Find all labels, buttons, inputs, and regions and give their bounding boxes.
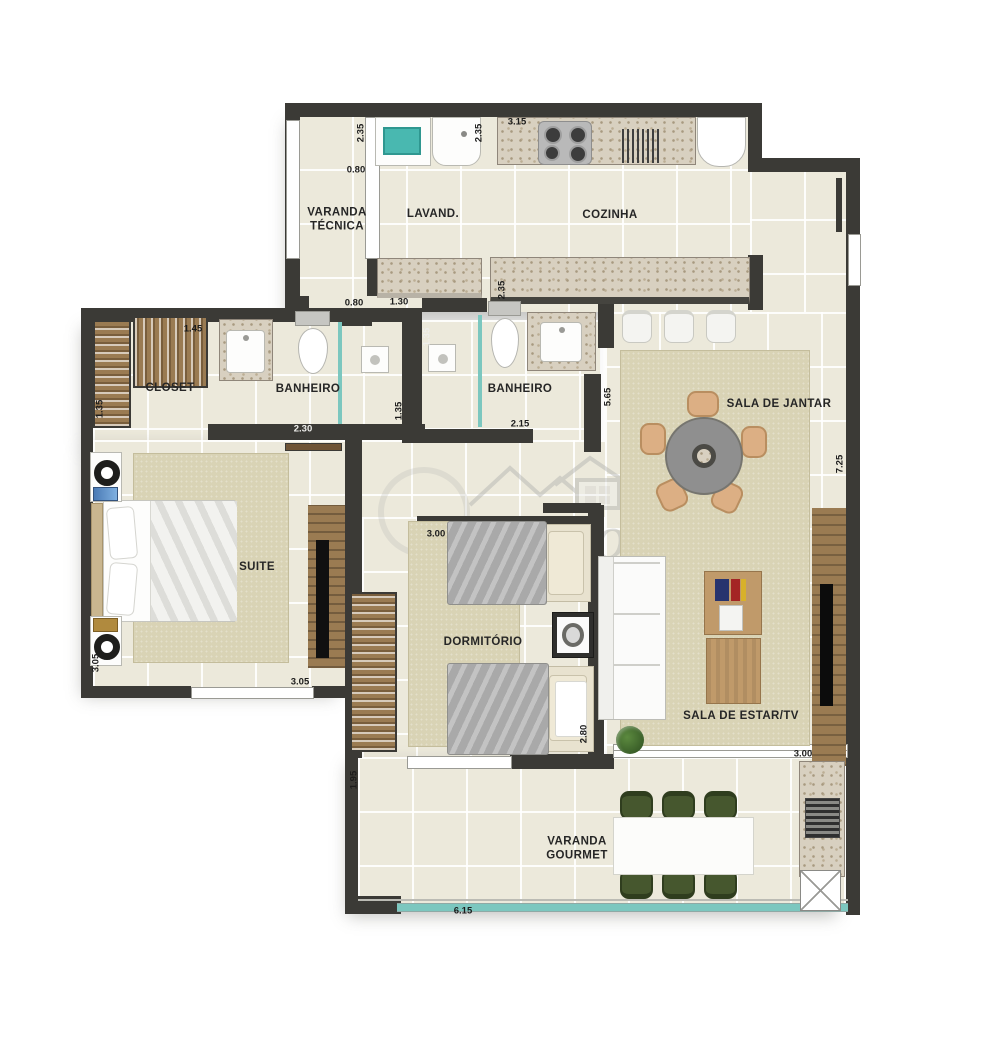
- bath1-shower-head: [361, 346, 389, 373]
- kitchen-counter-top: [497, 117, 696, 165]
- dim-closet-depth: 1.35: [95, 400, 106, 419]
- dim-cozinha-depth: 2.35: [497, 281, 508, 300]
- wall-bath2-top: [422, 298, 487, 312]
- fridge: [697, 117, 746, 167]
- dim-jantar-depth: 5.65: [603, 388, 614, 407]
- coffee-table-shelf: [704, 571, 762, 635]
- stove-burner: [544, 145, 560, 161]
- dining-chair: [640, 423, 666, 455]
- room-label-sala-estar: SALA DE ESTAR/TV: [683, 709, 799, 723]
- room-label-varanda-tecnica: VARANDA TÉCNICA: [307, 206, 366, 235]
- suite-lamp-top: [94, 460, 120, 486]
- bath1-faucet: [243, 335, 249, 341]
- dormitorio-window: [407, 756, 512, 769]
- bath2-faucet: [559, 327, 565, 333]
- living-tv: [820, 584, 833, 706]
- varanda-railing-sill: [358, 899, 848, 901]
- entry-window: [848, 234, 861, 286]
- dim-suite-width: 3.05: [291, 677, 310, 688]
- dim-banheiro1-depth: 1.35: [394, 402, 405, 421]
- laundry-counter: [377, 258, 482, 298]
- barbecue-grill: [805, 798, 840, 838]
- suite-pillow: [106, 506, 138, 560]
- wall-counter-right-stub: [748, 255, 763, 310]
- wall-bath-divider: [402, 310, 422, 440]
- stove: [538, 121, 592, 165]
- stove-burner: [569, 145, 587, 163]
- wall-step-horizontal: [748, 158, 860, 172]
- dormitorio-wardrobe: [350, 592, 397, 752]
- sofa: [598, 556, 666, 720]
- bath2-toilet-tank: [488, 301, 521, 316]
- varanda-table: [613, 817, 754, 875]
- suite-pillow: [106, 562, 138, 616]
- book-blue: [715, 579, 729, 601]
- plant: [616, 726, 644, 754]
- varanda-chair: [704, 791, 737, 820]
- dim-varanda-tecnica-height: 2.35: [356, 124, 367, 143]
- suite-bed: [103, 500, 235, 622]
- dormitorio-bed1-blanket: [447, 521, 547, 605]
- dining-chair: [687, 391, 719, 417]
- dim-varanda-depth: 1.95: [349, 771, 360, 790]
- sofa-cushions: [614, 561, 660, 715]
- dim-varanda-tecnica-width: 0.80: [347, 165, 366, 176]
- bath1-drain: [370, 355, 380, 365]
- book-red: [731, 579, 740, 601]
- varanda-chair: [662, 791, 695, 820]
- dim-right-side: 7.25: [835, 455, 846, 474]
- dim-lavand-height: 2.35: [474, 124, 485, 143]
- dim-lavand-width: 1.30: [390, 297, 409, 308]
- wall-topwing-bottom-mid: [340, 308, 372, 326]
- book-yellow: [741, 579, 746, 601]
- dining-table-center: [692, 444, 716, 468]
- room-label-dormitorio: DORMITÓRIO: [444, 635, 523, 649]
- dim-banheiro2-width: 2.15: [511, 419, 530, 430]
- suite-photo-frame: [93, 487, 118, 501]
- book-white: [719, 605, 743, 631]
- varanda-tecnica-window: [286, 120, 300, 259]
- entry-door-leaf: [836, 178, 842, 232]
- room-label-suite: SUITE: [239, 560, 275, 574]
- dim-closet-width: 1.45: [184, 324, 203, 335]
- floor-plan: Quecos: [0, 0, 1000, 1050]
- wall-bath-row-bottom: [208, 424, 425, 440]
- dim-estar-width: 3.00: [794, 749, 813, 760]
- room-label-lavand: LAVAND.: [407, 207, 459, 221]
- bar-stool: [706, 310, 736, 343]
- varanda-chair: [620, 791, 653, 820]
- wall-suite-bottom-left: [81, 686, 191, 698]
- dim-cozinha-width: 3.15: [508, 117, 527, 128]
- suite-window: [191, 687, 314, 699]
- dim-banheiro2-depth: 1.35: [422, 328, 433, 347]
- bath1-toilet-tank: [295, 311, 330, 326]
- wall-dormitorio-bottom: [510, 754, 614, 769]
- varanda-storage-box: [800, 870, 841, 911]
- dormitorio-bed1-pillow: [548, 531, 584, 595]
- bath2-shower-glass: [478, 315, 482, 427]
- dormitorio-bed2-blanket: [447, 663, 549, 755]
- stove-burner: [544, 126, 562, 144]
- dormitorio-bed-2: [448, 666, 594, 752]
- dim-dormitorio-depth: 2.80: [579, 725, 590, 744]
- dim-varanda-width: 6.15: [454, 906, 473, 917]
- suite-headboard: [91, 503, 103, 621]
- bar-stool: [664, 310, 694, 343]
- floor-varanda-gourmet: [358, 757, 846, 908]
- suite-tv: [316, 540, 329, 658]
- dormitorio-nightstand: [552, 612, 594, 658]
- suite-door-leaf: [285, 443, 342, 451]
- wall-exterior-top: [285, 103, 762, 117]
- dish-rack: [622, 129, 660, 163]
- room-label-banheiro-2: BANHEIRO: [488, 382, 553, 396]
- wall-dining-left-lower: [584, 374, 601, 452]
- kitchen-counter-island: [490, 257, 750, 304]
- dining-table: [665, 417, 743, 495]
- washer-knob: [461, 131, 467, 137]
- dim-suite-depth: 3.05: [91, 654, 102, 673]
- sofa-back: [599, 557, 614, 719]
- dim-varanda-tecnica-door: 0.80: [345, 298, 364, 309]
- wall-bath2-bottom: [402, 429, 533, 443]
- room-label-banheiro-1: BANHEIRO: [276, 382, 341, 396]
- bar-stool: [622, 310, 652, 343]
- suite-duvet: [150, 501, 237, 621]
- bath1-shower-glass: [338, 322, 342, 424]
- bath2-sink: [540, 322, 582, 362]
- coffee-table: [706, 638, 761, 704]
- laundry-tank-sink: [383, 127, 421, 155]
- dim-banheiro1-width: 2.30: [294, 424, 313, 435]
- dim-dormitorio-width: 3.00: [427, 529, 446, 540]
- wall-step-vertical: [748, 103, 762, 165]
- bath1-sink: [226, 330, 265, 373]
- bath2-drain: [438, 354, 448, 364]
- suite-decor-gold: [93, 618, 118, 632]
- floor-top-wing-right: [750, 165, 846, 312]
- room-label-cozinha: COZINHA: [582, 208, 637, 222]
- room-label-varanda-gourmet: VARANDA GOURMET: [546, 835, 608, 864]
- dining-chair: [741, 426, 767, 458]
- bath2-shower-head: [428, 344, 456, 372]
- hall-console: [543, 503, 601, 513]
- stove-burner: [569, 126, 587, 144]
- dormitorio-lamp: [562, 623, 584, 647]
- room-label-sala-jantar: SALA DE JANTAR: [727, 397, 832, 411]
- room-label-closet: CLOSET: [145, 381, 194, 395]
- dormitorio-bed-1: [448, 524, 591, 602]
